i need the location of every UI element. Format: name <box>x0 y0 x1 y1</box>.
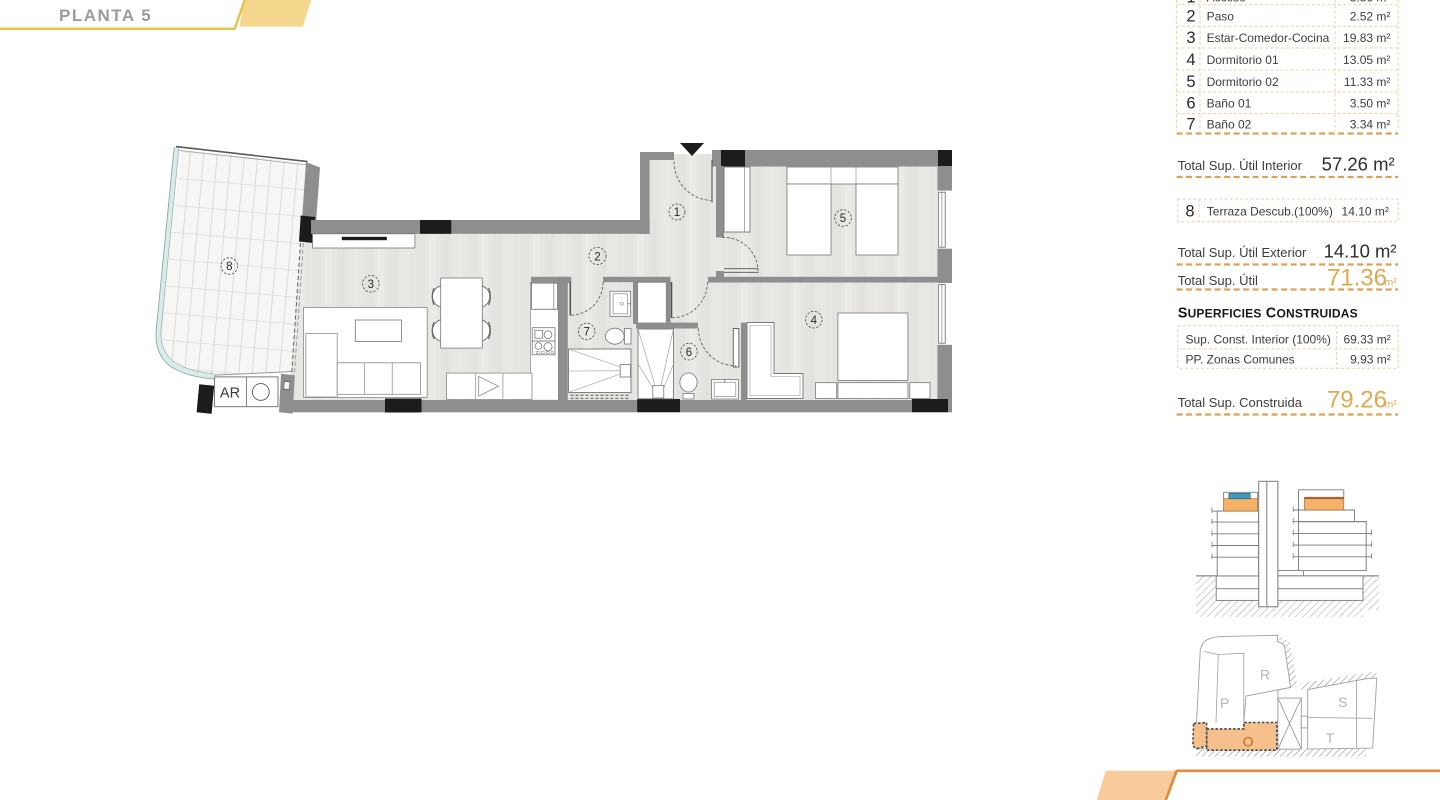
svg-text:2: 2 <box>1186 8 1195 26</box>
svg-text:PLANTA 5: PLANTA 5 <box>59 6 152 25</box>
svg-text:Sup. Const. Interior (100%): Sup. Const. Interior (100%) <box>1186 333 1331 347</box>
svg-text:AR: AR <box>220 386 240 402</box>
svg-text:69.33 m²: 69.33 m² <box>1343 333 1390 347</box>
svg-text:71.36: 71.36 <box>1327 265 1387 292</box>
svg-text:T: T <box>1326 730 1335 746</box>
svg-text:Acceso: Acceso <box>1207 0 1247 5</box>
svg-text:Dormitorio 01: Dormitorio 01 <box>1207 53 1279 67</box>
svg-text:5: 5 <box>1186 73 1195 91</box>
svg-text:3.56 m²: 3.56 m² <box>1350 0 1391 5</box>
svg-text:11.33 m²: 11.33 m² <box>1344 75 1390 89</box>
svg-text:6: 6 <box>686 347 692 359</box>
svg-text:R: R <box>1260 667 1270 683</box>
svg-text:79.26: 79.26 <box>1327 387 1387 414</box>
svg-text:m²: m² <box>1385 399 1398 411</box>
svg-text:57.26 m²: 57.26 m² <box>1322 154 1395 175</box>
svg-text:S: S <box>1338 694 1347 710</box>
svg-text:14.10 m²: 14.10 m² <box>1324 241 1397 262</box>
svg-text:5: 5 <box>840 213 846 225</box>
svg-text:14.10 m²: 14.10 m² <box>1342 205 1389 219</box>
svg-text:3: 3 <box>368 279 374 291</box>
svg-text:Dormitorio 02: Dormitorio 02 <box>1207 75 1279 89</box>
svg-text:3.34 m²: 3.34 m² <box>1350 118 1391 132</box>
svg-text:Total Sup. Construida: Total Sup. Construida <box>1178 395 1303 410</box>
svg-text:Total Sup. Útil Interior: Total Sup. Útil Interior <box>1178 158 1303 173</box>
svg-text:PP. Zonas Comunes: PP. Zonas Comunes <box>1186 353 1295 367</box>
svg-text:8: 8 <box>226 261 232 273</box>
svg-text:Estar-Comedor-Cocina: Estar-Comedor-Cocina <box>1207 31 1330 45</box>
svg-text:6: 6 <box>1186 95 1195 113</box>
svg-text:SUPERFICIES CONSTRUIDAS: SUPERFICIES CONSTRUIDAS <box>1178 306 1358 322</box>
svg-text:Total Sup. Útil Exterior: Total Sup. Útil Exterior <box>1178 245 1307 260</box>
svg-text:1: 1 <box>1186 0 1195 7</box>
svg-text:2.52 m²: 2.52 m² <box>1350 10 1391 24</box>
svg-text:1: 1 <box>674 207 680 219</box>
svg-text:7: 7 <box>1186 116 1195 134</box>
svg-text:Total Sup. Útil: Total Sup. Útil <box>1178 273 1258 288</box>
svg-text:3: 3 <box>1186 29 1195 47</box>
svg-text:Baño 01: Baño 01 <box>1207 97 1252 111</box>
svg-text:3.50 m²: 3.50 m² <box>1350 97 1391 111</box>
svg-text:2: 2 <box>594 251 600 263</box>
svg-text:Baño 02: Baño 02 <box>1207 118 1252 132</box>
svg-text:7: 7 <box>583 327 589 339</box>
svg-text:O: O <box>1243 734 1254 750</box>
svg-text:m²: m² <box>1385 277 1398 289</box>
svg-text:8: 8 <box>1185 203 1194 221</box>
svg-text:19.83 m²: 19.83 m² <box>1343 31 1390 45</box>
svg-text:Terraza Descub.(100%): Terraza Descub.(100%) <box>1207 205 1333 219</box>
svg-text:4: 4 <box>811 315 818 327</box>
svg-text:4: 4 <box>1186 51 1195 69</box>
svg-text:P: P <box>1220 695 1229 711</box>
svg-text:Paso: Paso <box>1207 10 1235 24</box>
svg-text:13.05 m²: 13.05 m² <box>1343 53 1390 67</box>
svg-text:9.93 m²: 9.93 m² <box>1350 353 1391 367</box>
